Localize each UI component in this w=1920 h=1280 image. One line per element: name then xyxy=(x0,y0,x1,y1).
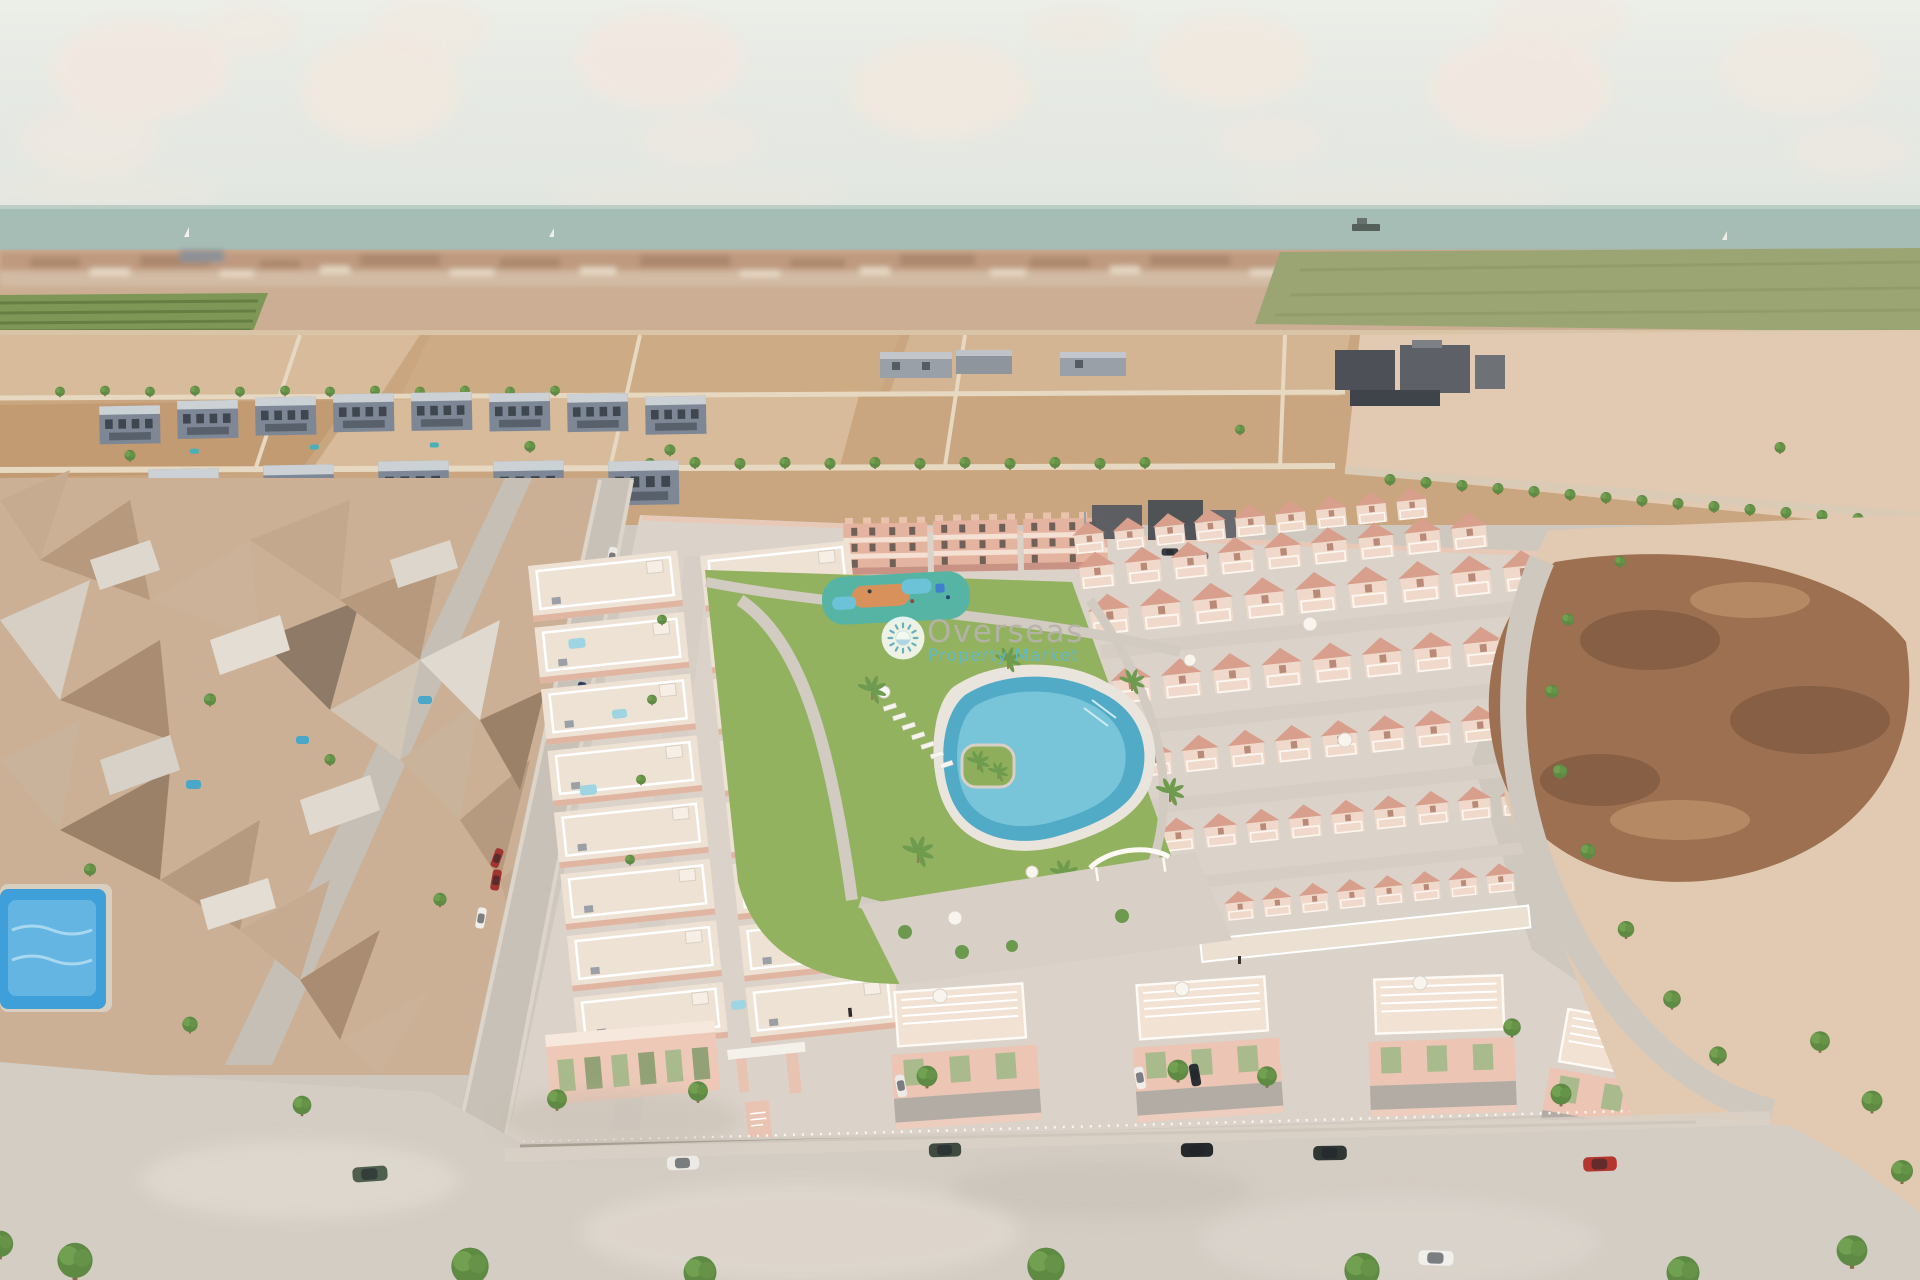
big-neighbour-pool xyxy=(0,884,112,1012)
person xyxy=(1238,956,1241,964)
coastal-town-horizon xyxy=(0,248,1920,342)
sea xyxy=(0,205,1920,253)
render-canvas: Overseas Property Market xyxy=(0,0,1920,1280)
aerial-render: Overseas Property Market xyxy=(0,0,1920,1280)
sky xyxy=(0,0,1920,214)
pool-island xyxy=(962,745,1014,787)
watermark-tagline: Property Market xyxy=(928,646,1079,666)
warehouse-buildings xyxy=(880,350,1126,378)
watermark-brand: Overseas xyxy=(927,614,1084,650)
sun-icon xyxy=(882,617,925,660)
